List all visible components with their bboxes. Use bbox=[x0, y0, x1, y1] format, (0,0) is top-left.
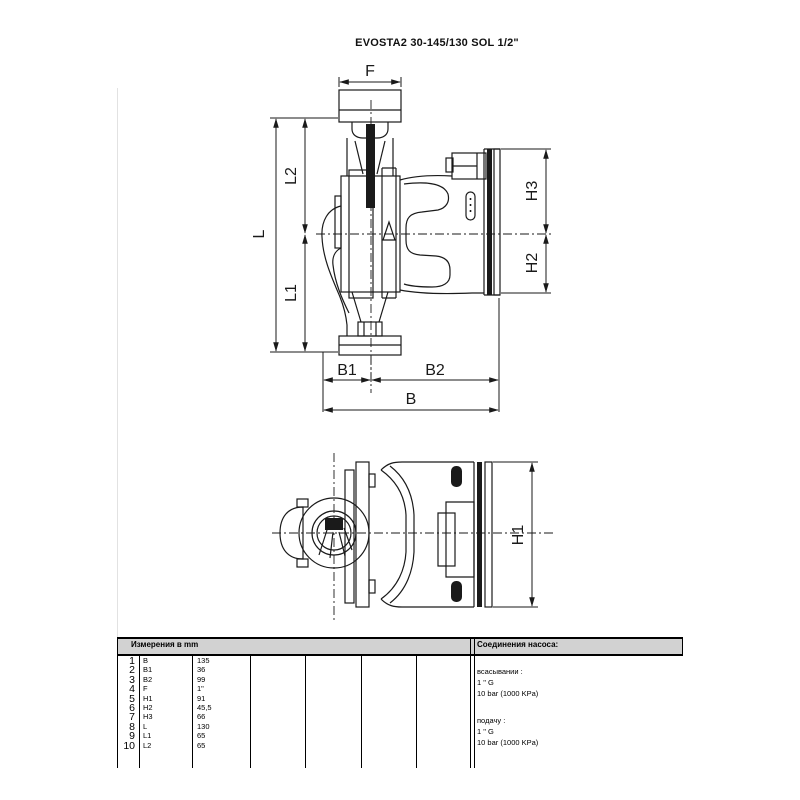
dim-value: 65 bbox=[197, 731, 205, 740]
dim-value: 99 bbox=[197, 675, 205, 684]
terminal-box-top-view bbox=[438, 502, 474, 577]
suction-size: 1 " G bbox=[477, 678, 494, 687]
side-view: F L L2 L1 H3 H2 B1 B2 B bbox=[251, 63, 552, 412]
dim-label-l: L bbox=[251, 229, 268, 238]
table-right-border bbox=[682, 637, 683, 656]
side-view-centerlines bbox=[316, 100, 552, 393]
dim-name: H3 bbox=[143, 712, 153, 721]
dim-value: 66 bbox=[197, 712, 205, 721]
table-row: 3B299 bbox=[117, 675, 467, 684]
dim-name: B bbox=[143, 656, 148, 665]
dim-label-b: B bbox=[406, 391, 417, 408]
bottom-port-flange bbox=[339, 336, 401, 355]
dim-value: 65 bbox=[197, 741, 205, 750]
dim-label-b1: B1 bbox=[337, 362, 357, 379]
table-row: 8L130 bbox=[117, 722, 467, 731]
table-row: 9L165 bbox=[117, 731, 467, 740]
dimensions-header: Измерения в mm bbox=[131, 640, 198, 649]
table-header-bar bbox=[117, 637, 683, 656]
dim-name: L bbox=[143, 722, 147, 731]
top-view: H1 bbox=[272, 453, 556, 620]
dim-value: 1" bbox=[197, 684, 204, 693]
table-row: 10L265 bbox=[117, 741, 467, 750]
dimensions-table: Измерения в mm Соединения насоса: 1B135 … bbox=[117, 637, 683, 768]
dim-label-l1: L1 bbox=[283, 284, 300, 302]
discharge-size: 1 " G bbox=[477, 727, 494, 736]
table-row: 4F1" bbox=[117, 684, 467, 693]
dim-value: 91 bbox=[197, 694, 205, 703]
dim-name: B2 bbox=[143, 675, 152, 684]
flow-direction-arrow bbox=[383, 222, 395, 240]
table-row: 5H191 bbox=[117, 694, 467, 703]
dim-name: L1 bbox=[143, 731, 151, 740]
table-row: 7H366 bbox=[117, 712, 467, 721]
dim-label-f: F bbox=[365, 63, 375, 80]
pump-vertical-pipe bbox=[347, 124, 393, 208]
dim-name: B1 bbox=[143, 665, 152, 674]
dim-name: L2 bbox=[143, 741, 151, 750]
dim-name: H2 bbox=[143, 703, 153, 712]
dim-label-b2: B2 bbox=[425, 362, 445, 379]
motor-top-view bbox=[381, 462, 492, 607]
motor-side-view bbox=[400, 149, 500, 295]
dim-name: F bbox=[143, 684, 148, 693]
side-view-dimensions bbox=[270, 77, 551, 412]
suction-pressure: 10 bar (1000 KPa) bbox=[477, 689, 538, 698]
dim-value: 130 bbox=[197, 722, 210, 731]
dim-value: 36 bbox=[197, 665, 205, 674]
row-number: 10 bbox=[117, 740, 135, 752]
dimension-rows: 1B135 2B136 3B299 4F1" 5H191 6H245,5 7H3… bbox=[117, 656, 467, 750]
dim-value: 135 bbox=[197, 656, 210, 665]
discharge-label: подачу : bbox=[477, 716, 505, 725]
connections-header: Соединения насоса: bbox=[477, 640, 558, 649]
dim-label-h3: H3 bbox=[524, 181, 541, 202]
discharge-pressure: 10 bar (1000 KPa) bbox=[477, 738, 538, 747]
table-row: 6H245,5 bbox=[117, 703, 467, 712]
pump-technical-drawing: F L L2 L1 H3 H2 B1 B2 B bbox=[0, 0, 800, 636]
dim-name: H1 bbox=[143, 694, 153, 703]
dim-label-h2: H2 bbox=[524, 253, 541, 274]
adapter-flange-plates bbox=[345, 462, 375, 607]
dim-value: 45,5 bbox=[197, 703, 212, 712]
table-row: 2B136 bbox=[117, 665, 467, 674]
table-row: 1B135 bbox=[117, 656, 467, 665]
dim-label-l2: L2 bbox=[283, 167, 300, 185]
datasheet-page: EVOSTA2 30-145/130 SOL 1/2" bbox=[0, 0, 800, 800]
section-divider bbox=[470, 637, 471, 768]
suction-label: всасывании : bbox=[477, 667, 523, 676]
dim-label-h1: H1 bbox=[510, 525, 527, 546]
